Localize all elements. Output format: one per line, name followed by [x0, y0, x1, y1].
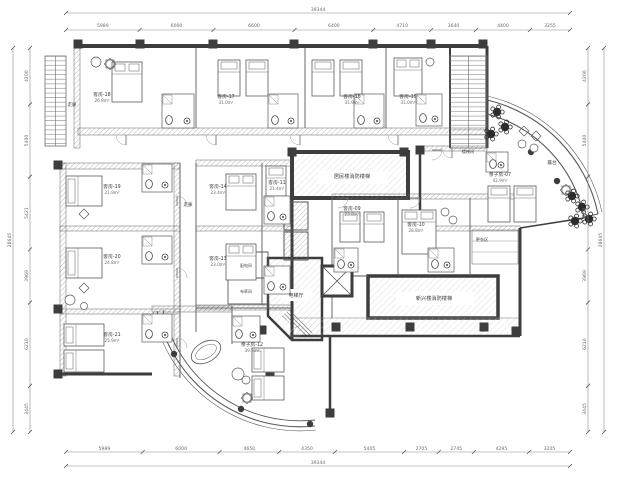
- dimension-value: 3445: [24, 403, 30, 415]
- space-label: 新兴楼消防楼梯: [416, 294, 452, 302]
- dimension-value: 5989: [97, 23, 109, 29]
- table-icon: [81, 303, 88, 310]
- column-icon: [369, 40, 378, 49]
- space-label: 电梯厅: [288, 292, 303, 299]
- dimension-value: 3205: [544, 446, 556, 452]
- room-area: 23.0m²: [210, 262, 225, 267]
- dimension-value: 6210: [24, 338, 30, 350]
- space-label: 布草间: [240, 289, 252, 294]
- bed-icon: [64, 350, 104, 372]
- door-swing-icon: [290, 135, 300, 145]
- door-swing-icon: [432, 150, 442, 160]
- dimension-value: 4350: [301, 446, 313, 452]
- column-icon: [171, 351, 177, 357]
- dimension-chain: 5989600046504350540527052745429532053934…: [64, 446, 572, 468]
- dimension-value: 3255: [544, 23, 556, 29]
- column-icon: [400, 148, 409, 157]
- room-name: 客房-10: [407, 221, 424, 228]
- dimension-value: 6600: [248, 23, 260, 29]
- decor-star-icon: [241, 392, 252, 403]
- column-icon: [479, 40, 488, 49]
- room-label: 客房-1731.0m²: [217, 93, 234, 105]
- column-icon: [332, 323, 341, 332]
- bed-icon: [252, 376, 284, 400]
- bed-icon: [340, 60, 362, 96]
- space-label: 更衣区: [476, 236, 489, 243]
- bathtub-icon: [187, 335, 225, 368]
- room-label: 客房-2125.9m²: [103, 331, 120, 343]
- door-swing-icon: [206, 135, 216, 145]
- room-label: 亲子房-0742.9m²: [489, 171, 511, 183]
- room-name: 客房-17: [217, 93, 234, 100]
- floor-plan-canvas: 5989600066006400471036404400325539344598…: [0, 0, 640, 479]
- bathroom-icon: [334, 248, 358, 272]
- dimension-value: 6000: [175, 446, 187, 452]
- room-area: 31.0m²: [218, 100, 233, 105]
- room-label: 客房-1028.8m²: [407, 221, 424, 233]
- space-label: 走廊: [184, 201, 193, 208]
- room-label: 客房-1323.0m²: [209, 255, 226, 267]
- column-icon: [54, 370, 63, 379]
- room-name: 客房-14: [209, 183, 226, 190]
- room-label: 客房-1531.0m²: [399, 93, 416, 105]
- room-area: 28.8m²: [408, 228, 423, 233]
- dimension-value: 3969: [24, 270, 30, 282]
- dimension-value: 6000: [171, 23, 183, 29]
- dimension-value: 5405: [364, 446, 376, 452]
- bathroom-icon: [486, 152, 508, 172]
- bathroom-icon: [268, 94, 298, 128]
- space-label: 配电间: [240, 263, 252, 268]
- column-icon: [326, 409, 335, 418]
- column-icon: [416, 146, 425, 155]
- space-label: 走廊: [68, 101, 77, 108]
- room-name: 客房-19: [103, 183, 120, 190]
- room-name: 亲子房-12: [241, 341, 263, 348]
- table-icon: [530, 144, 538, 152]
- room-area: 24.8m²: [104, 260, 119, 265]
- room-name: 客房-18: [93, 91, 110, 98]
- room-name: 客房-15: [399, 93, 416, 100]
- bed-icon: [66, 176, 102, 206]
- table-icon: [242, 376, 250, 384]
- column-icon: [54, 305, 63, 314]
- dimension-value: 3969: [582, 270, 588, 282]
- bed-icon: [66, 248, 102, 278]
- column-icon: [512, 327, 521, 336]
- dimension-value: 4200: [582, 70, 588, 82]
- dimension-chain: 42005400542139696210344528645: [582, 46, 606, 434]
- plant-icon: [566, 189, 579, 203]
- room-label: 客房-0923.8m²: [343, 205, 360, 217]
- room-area: 25.9m²: [104, 338, 119, 343]
- dimension-value: 39344: [311, 460, 326, 466]
- space-label: 露台: [547, 159, 557, 166]
- floor-plan-page: 5989600066006400471036404400325539344598…: [0, 0, 640, 479]
- bathroom-icon: [232, 316, 260, 342]
- dimension-value: 3445: [582, 403, 588, 415]
- room-area: 21.4m²: [269, 186, 284, 191]
- column-icon: [480, 323, 489, 332]
- dimension-value: 5421: [582, 207, 588, 219]
- bed-icon: [364, 212, 384, 242]
- door-swing-icon: [116, 135, 126, 145]
- chair-icon: [79, 209, 89, 219]
- dimension-value: 28645: [7, 233, 13, 248]
- dimension-value: 4295: [496, 446, 508, 452]
- dimension-value: 4400: [497, 23, 509, 29]
- dimension-value: 4650: [244, 446, 256, 452]
- dimension-value: 2745: [450, 446, 462, 452]
- dimension-value: 28645: [598, 233, 604, 248]
- room-name: 客房-13: [209, 255, 226, 262]
- room-name: 客房-11: [268, 179, 285, 186]
- room-area: 39.9m²: [244, 348, 259, 353]
- bed-icon: [394, 58, 422, 96]
- space-label: 楼梯间: [462, 148, 475, 155]
- room-label: 客房-1631.9m²: [343, 93, 360, 105]
- bathroom-icon: [162, 94, 194, 128]
- dimension-value: 3640: [448, 23, 460, 29]
- dimension-value: 4200: [24, 70, 30, 82]
- bathroom-icon: [264, 266, 290, 294]
- room-area: 23.8m²: [344, 212, 359, 217]
- bed-icon: [218, 60, 240, 96]
- plant-icon: [485, 127, 498, 141]
- bed-icon: [112, 62, 142, 102]
- room-name: 客房-21: [103, 331, 120, 338]
- elevator-shaft-icon: [284, 232, 308, 260]
- room-label: 客房-1121.4m²: [268, 179, 285, 191]
- bed-icon: [488, 186, 510, 222]
- dimension-value: 5400: [582, 135, 588, 147]
- dimension-value: 39344: [311, 7, 326, 13]
- decor-star-icon: [560, 184, 571, 195]
- dimension-value: 6210: [582, 338, 588, 350]
- column-icon: [288, 148, 297, 157]
- room-name: 客房-20: [103, 253, 120, 260]
- dimension-value: 2705: [416, 446, 428, 452]
- bathroom-icon: [264, 196, 290, 224]
- room-area: 26.9m²: [94, 98, 109, 103]
- door-swing-icon: [388, 135, 398, 145]
- bed-icon: [226, 174, 256, 210]
- dimension-chain: 42005400542139696210344528645: [7, 46, 32, 434]
- room-label: 客房-2024.8m²: [103, 253, 120, 265]
- bed-icon: [246, 60, 268, 96]
- table-icon: [91, 57, 101, 67]
- bed-icon: [64, 324, 104, 346]
- bed-icon: [514, 186, 536, 222]
- dimension-value: 5989: [99, 446, 111, 452]
- column-icon: [74, 40, 83, 49]
- room-area: 21.9m²: [104, 190, 119, 195]
- closet-icon: [472, 230, 518, 264]
- column-icon: [554, 178, 560, 184]
- dimension-value: 6400: [328, 23, 340, 29]
- room-name: 客房-09: [343, 205, 360, 212]
- table-icon: [441, 208, 449, 216]
- room-area: 23.4m²: [210, 190, 225, 195]
- dimension-value: 5400: [24, 135, 30, 147]
- column-icon: [290, 40, 299, 49]
- bathroom-icon: [142, 314, 172, 342]
- table-icon: [65, 295, 75, 305]
- space-label: 居民楼消防楼梯: [334, 172, 370, 180]
- dimension-chain: 5989600066006400471036404400325539344: [64, 7, 572, 32]
- room-label: 客房-1921.9m²: [103, 183, 120, 195]
- room-area: 31.0m²: [400, 100, 415, 105]
- dimension-value: 5421: [24, 207, 30, 219]
- bathroom-icon: [142, 164, 172, 192]
- room-name: 客房-16: [343, 93, 360, 100]
- door-swing-icon: [410, 198, 420, 208]
- column-icon: [136, 40, 145, 49]
- room-label: 客房-1826.9m²: [93, 91, 110, 103]
- column-icon: [427, 40, 436, 49]
- room-area: 31.9m²: [344, 100, 359, 105]
- decor-star-icon: [104, 58, 115, 69]
- room-area: 42.9m²: [492, 178, 507, 183]
- dimension-value: 4710: [396, 23, 408, 29]
- chair-icon: [79, 283, 89, 293]
- plant-icon: [569, 214, 582, 228]
- bathroom-icon: [142, 236, 172, 264]
- table-icon: [426, 58, 434, 66]
- room-name: 亲子房-07: [489, 171, 511, 178]
- column-icon: [54, 161, 63, 170]
- table-icon: [518, 140, 526, 148]
- room-label: 客房-1423.4m²: [209, 183, 226, 195]
- column-icon: [238, 406, 244, 412]
- bed-icon: [312, 60, 334, 96]
- column-icon: [307, 421, 313, 427]
- bathroom-icon: [428, 248, 454, 272]
- bathroom-icon: [416, 94, 442, 126]
- column-icon: [406, 323, 415, 332]
- table-icon: [449, 216, 457, 224]
- bed-icon: [226, 244, 256, 280]
- column-icon: [209, 40, 218, 49]
